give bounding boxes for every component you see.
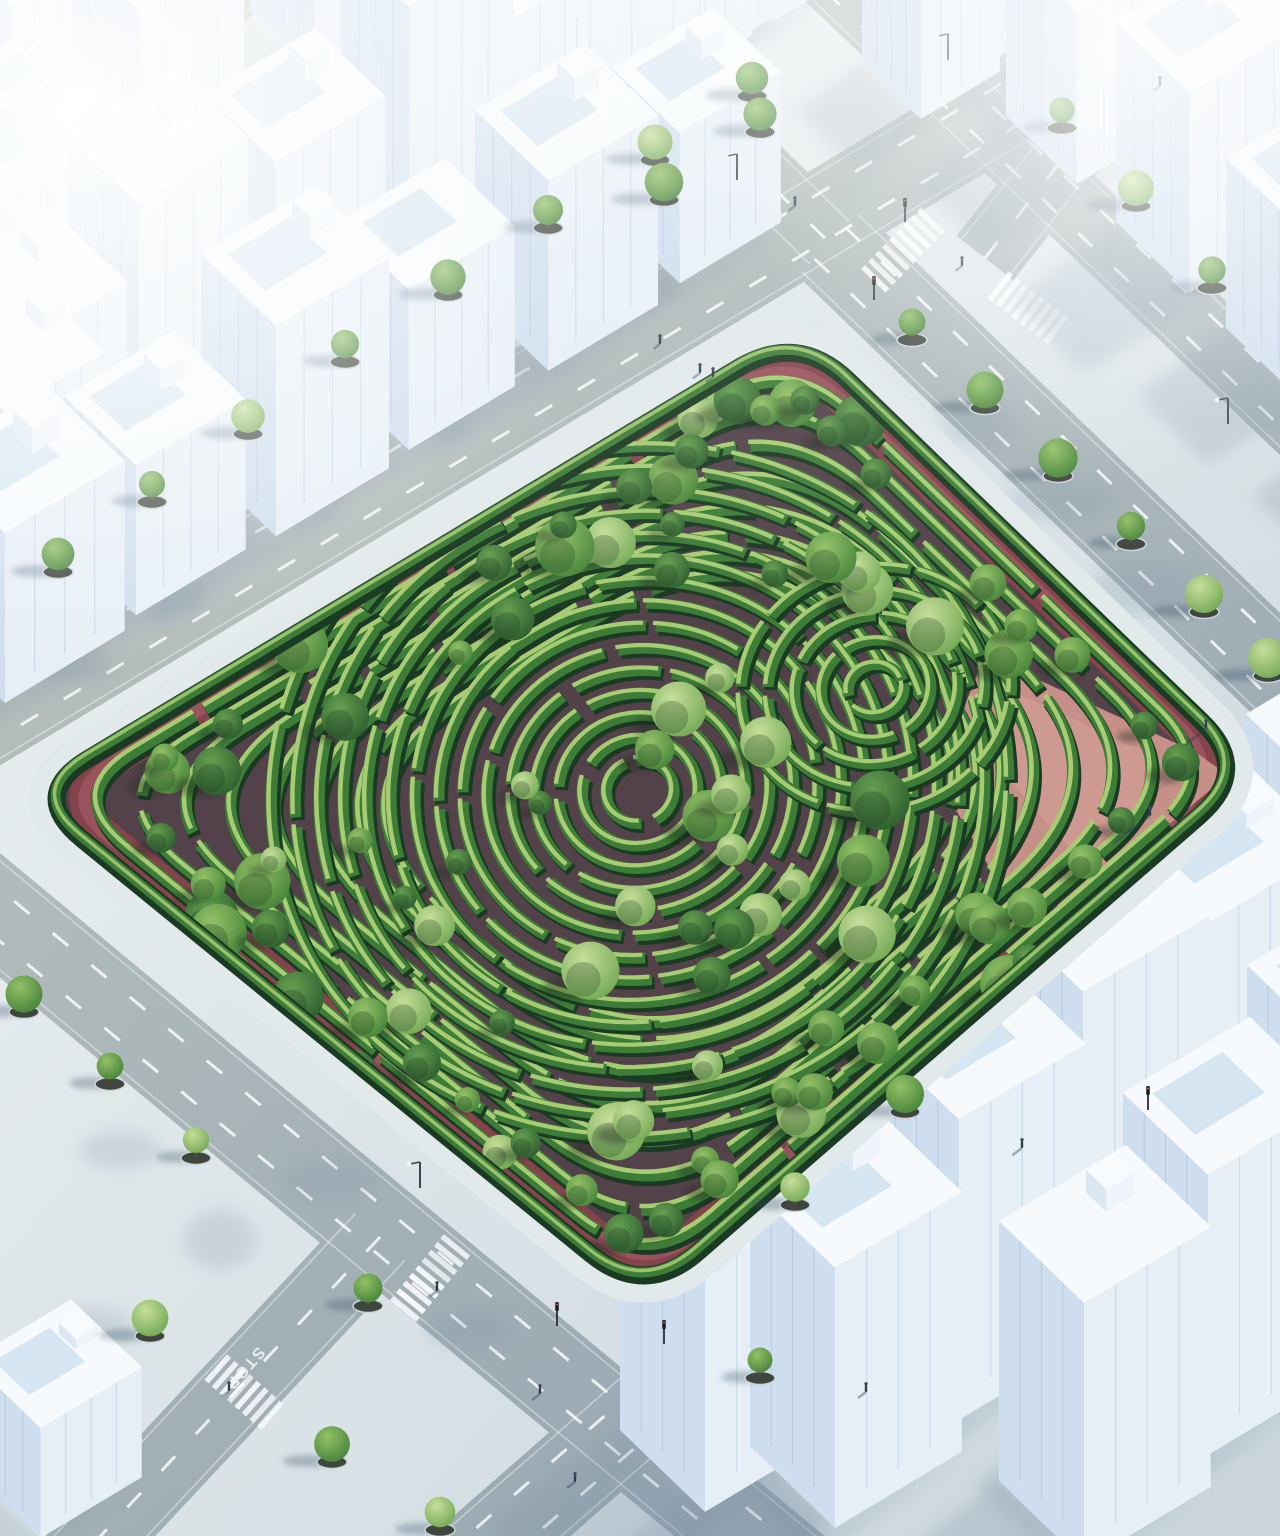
atmosphere-wash	[0, 0, 1280, 1536]
aerial-city-maze-render: STOP	[0, 0, 1280, 1536]
scene-svg: STOP	[0, 0, 1280, 1536]
sunlight-glare-layer	[0, 0, 1280, 1536]
